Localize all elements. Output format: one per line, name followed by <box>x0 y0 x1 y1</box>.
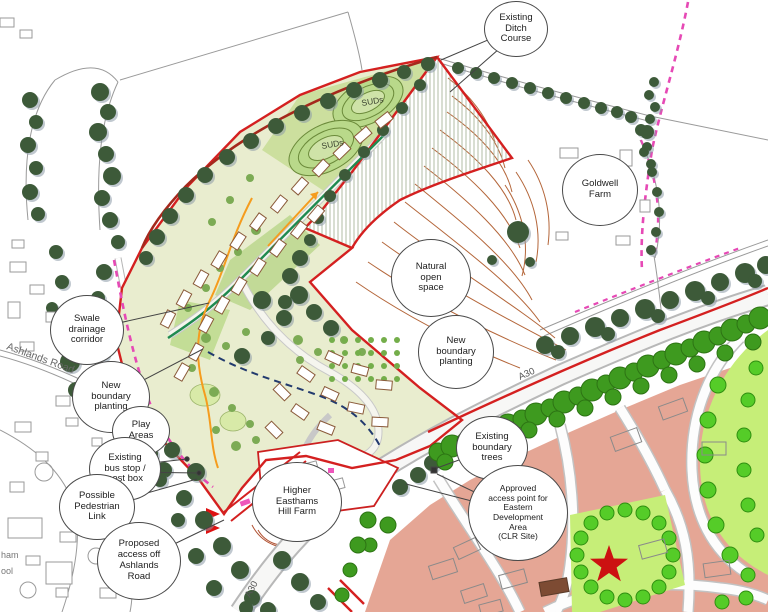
callout-new-boundary-planting-east: New boundary planting <box>418 315 494 389</box>
play-area-patch <box>220 411 246 431</box>
callout-natural-open-space: Natural open space <box>391 239 471 317</box>
callout-swale-drainage-corridor: Swale drainage corridor <box>50 295 124 365</box>
clipped-label-2: ool <box>1 566 13 576</box>
callout-goldwell-farm: Goldwell Farm <box>562 154 638 226</box>
callout-higher-easthams-hill-farm: Higher Easthams Hill Farm <box>252 462 342 542</box>
callout-approved-access-point: Approved access point for Eastern Develo… <box>468 465 568 561</box>
clipped-label-1: ham <box>1 550 19 560</box>
masterplan-page: SUDs SUDs Ashlands Road A30 A30 ham ool … <box>0 0 768 612</box>
callout-existing-ditch-course: Existing Ditch Course <box>484 1 548 57</box>
callout-proposed-access: Proposed access off Ashlands Road <box>97 522 181 600</box>
